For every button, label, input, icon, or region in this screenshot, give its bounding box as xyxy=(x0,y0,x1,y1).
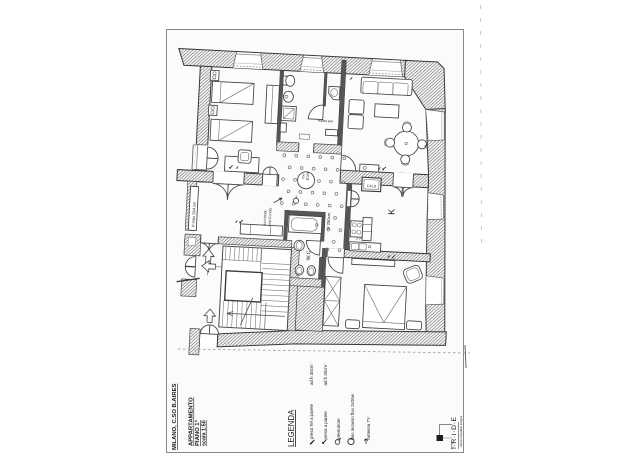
svg-text:Servizi Immobiliari Integrati: Servizi Immobiliari Integrati xyxy=(459,415,463,447)
svg-text:presa a parete: presa a parete xyxy=(323,411,328,440)
svg-text:PIANO 1°: PIANO 1° xyxy=(195,419,201,446)
svg-text:LEGENDA: LEGENDA xyxy=(287,409,296,447)
svg-text:presa Tel a parete: presa Tel a parete xyxy=(309,403,314,439)
svg-text:Antenna TV: Antenna TV xyxy=(366,417,371,440)
svg-text:MILANO, C.SO B.AIRES: MILANO, C.SO B.AIRES xyxy=(172,383,178,450)
svg-text:scala 1:50: scala 1:50 xyxy=(202,420,208,446)
svg-text:Bocchette: Bocchette xyxy=(263,210,268,226)
svg-text:tecnico: tecnico xyxy=(451,441,454,449)
svg-text:ad h 30cm ´: ad h 30cm ´ xyxy=(309,361,314,385)
svg-text:faro incasso fluo 2x26w: faro incasso fluo 2x26w xyxy=(350,393,355,440)
svg-text:interruttore: interruttore xyxy=(336,418,341,440)
svg-text:APPARTAMENTO: APPARTAMENTO xyxy=(189,397,195,446)
svg-text:ad h 30cm ´: ad h 30cm ´ xyxy=(323,362,328,386)
svg-text:anti bagno: anti bagno xyxy=(317,119,333,124)
svg-text:CALD: CALD xyxy=(367,184,377,189)
svg-text:Ø100: Ø100 xyxy=(306,172,310,180)
svg-text:H 250cm.: H 250cm. xyxy=(325,211,331,229)
svg-text:K: K xyxy=(386,209,396,216)
